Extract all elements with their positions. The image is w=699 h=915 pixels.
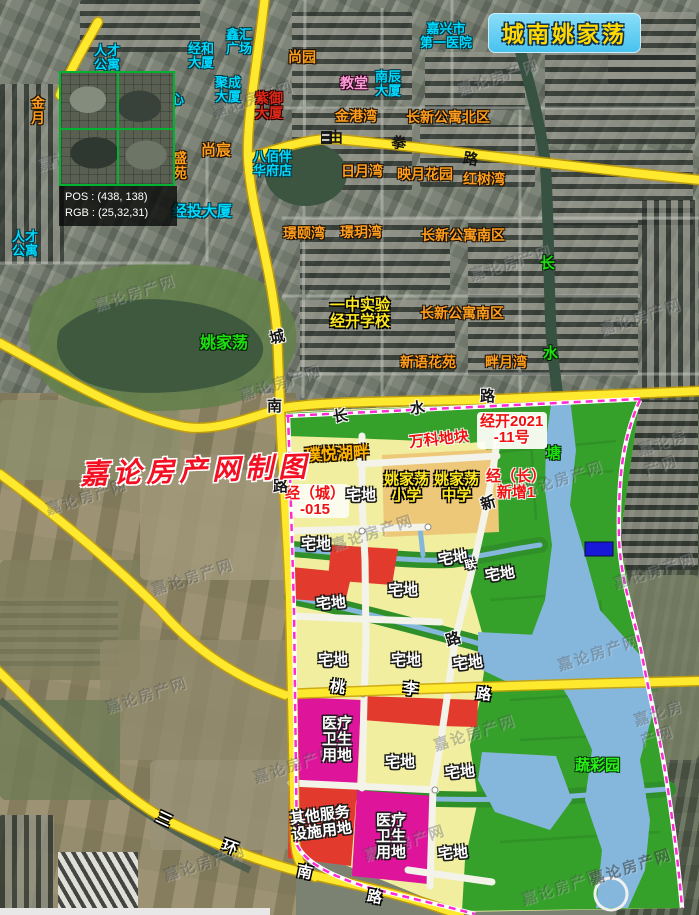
magnifier-pos-readout: POS : (438, 138)	[65, 191, 148, 203]
magnifier-inset	[59, 71, 175, 186]
bridge-icon	[321, 131, 332, 144]
label-box-2021	[477, 412, 547, 449]
label-box-015	[293, 484, 349, 518]
magnifier-crosshair-horizontal	[61, 128, 173, 130]
magnifier-info-panel: POS : (438, 138) RGB : (25,32,31)	[59, 186, 177, 226]
credit-watermark: 嘉论房产网制图	[79, 445, 311, 493]
blue-parcel-marker	[585, 542, 613, 556]
map-canvas: 嘉论房产网嘉论房产网嘉论房产网嘉论房产网嘉论房产网嘉论房产网嘉论房产网嘉论房产网…	[0, 0, 699, 915]
map-title: 城南姚家荡	[488, 13, 641, 53]
magnifier-rgb-readout: RGB : (25,32,31)	[65, 207, 148, 219]
